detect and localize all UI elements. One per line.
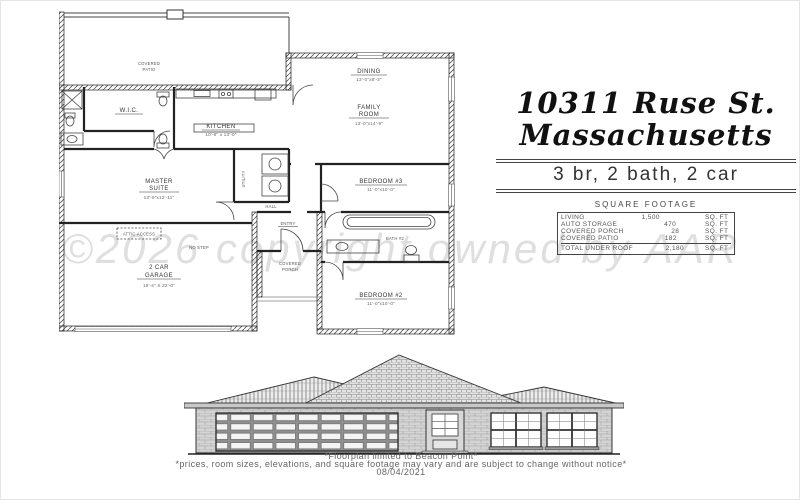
- room-label-garage-2: GARAGE: [145, 273, 173, 279]
- house-elevation-drawing: [184, 347, 624, 459]
- table-row: COVERED PORCH 28 SQ. FT: [561, 228, 731, 235]
- room-label-family-2: ROOM: [359, 112, 379, 118]
- room-label-garage: 2 CAR: [149, 265, 169, 271]
- footer-disclaimer: *Floorplan limited to Beacon Point* *pri…: [1, 452, 800, 477]
- room-label-covered-patio: COVERED: [138, 61, 160, 66]
- row-unit: SQ. FT: [701, 221, 731, 228]
- room-label-bedroom3: BEDROOM #3: [359, 179, 403, 185]
- bed-bath-car-summary: 3 br, 2 bath, 2 car: [553, 164, 739, 185]
- room-dims-bedroom2: 11'-0"x10'-0": [367, 301, 395, 306]
- garage-door: [216, 413, 398, 451]
- room-dims-kitchen: 10'-8" x 13'-0": [205, 132, 236, 137]
- front-door: [422, 410, 468, 454]
- roof: [184, 355, 624, 408]
- room-label-bath2: BATH #2: [386, 236, 405, 241]
- row-unit: SQ. FT: [701, 214, 731, 221]
- disclaimer-date: 08/04/2021: [1, 468, 800, 477]
- row-label: COVERED PORCH: [561, 228, 624, 235]
- room-label-porch-2: PORCH: [282, 267, 298, 272]
- room-dims-master: 13'-9"x12'-11": [144, 195, 175, 200]
- table-row: COVERED PATIO 182 SQ. FT: [561, 235, 731, 242]
- room-label-hall: HALL: [265, 204, 277, 209]
- room-dims-dining: 13'-0"x8'-3": [356, 77, 382, 82]
- total-unit: SQ. FT: [701, 245, 731, 253]
- row-label: COVERED PATIO: [561, 235, 619, 242]
- room-label-bedroom2: BEDROOM #2: [359, 293, 403, 299]
- attic-access-label: ATTIC ACCESS: [123, 232, 155, 237]
- square-footage-table: LIVING 1,500 SQ. FT AUTO STORAGE 470 SQ.…: [557, 212, 735, 255]
- total-value: 2,180: [650, 245, 684, 253]
- room-dims-garage: 19'-4" X 22'-0": [143, 283, 175, 288]
- row-value: 182: [643, 235, 677, 242]
- address-line-1: 10311 Ruse St.: [496, 87, 796, 119]
- table-total-row: TOTAL UNDER ROOF 2,180 SQ. FT: [561, 243, 731, 253]
- room-label-family: FAMILY: [357, 105, 380, 111]
- room-label-wic: W.I.C.: [120, 108, 139, 114]
- row-value: 470: [642, 221, 676, 228]
- row-value: 1,500: [626, 214, 660, 221]
- room-label-porch: COVERED: [279, 261, 301, 266]
- address-line-2: Massachusetts: [496, 119, 796, 151]
- room-label-utility: UTILITY: [241, 171, 246, 188]
- no-step-label: NO STEP: [189, 245, 209, 250]
- table-row: LIVING 1,500 SQ. FT: [561, 214, 731, 221]
- room-label-kitchen: KITCHEN: [206, 124, 235, 130]
- summary-rules: 3 br, 2 bath, 2 car: [496, 159, 796, 193]
- listing-flyer-page: ©2026 copyright owned by AAR: [0, 0, 800, 500]
- patio-edge: [64, 10, 289, 53]
- row-unit: SQ. FT: [701, 228, 731, 235]
- exterior-walls: [59, 12, 454, 334]
- title-block: 10311 Ruse St. Massachusetts 3 br, 2 bat…: [496, 87, 796, 255]
- floorplan-drawing: COVERED PATIO W.I.C. KITCHEN 10'-8" x 13…: [59, 9, 459, 344]
- square-footage-heading: SQUARE FOOTAGE: [496, 200, 796, 209]
- room-label-master-2: SUITE: [149, 186, 169, 192]
- room-dims-bedroom3: 11'-0"x10'-0": [367, 187, 395, 192]
- row-unit: SQ. FT: [701, 235, 731, 242]
- room-label-covered-patio-2: PATIO: [143, 67, 156, 72]
- row-label: LIVING: [561, 214, 585, 221]
- total-label: TOTAL UNDER ROOF: [561, 245, 633, 253]
- room-dims-family: 13'-0"x14'-9": [355, 121, 383, 126]
- row-label: AUTO STORAGE: [561, 221, 617, 228]
- room-label-master: MASTER: [145, 179, 173, 185]
- table-row: AUTO STORAGE 470 SQ. FT: [561, 221, 731, 228]
- row-value: 28: [645, 228, 679, 235]
- room-label-entry: ENTRY: [280, 221, 295, 226]
- room-label-dining: DINING: [357, 69, 380, 75]
